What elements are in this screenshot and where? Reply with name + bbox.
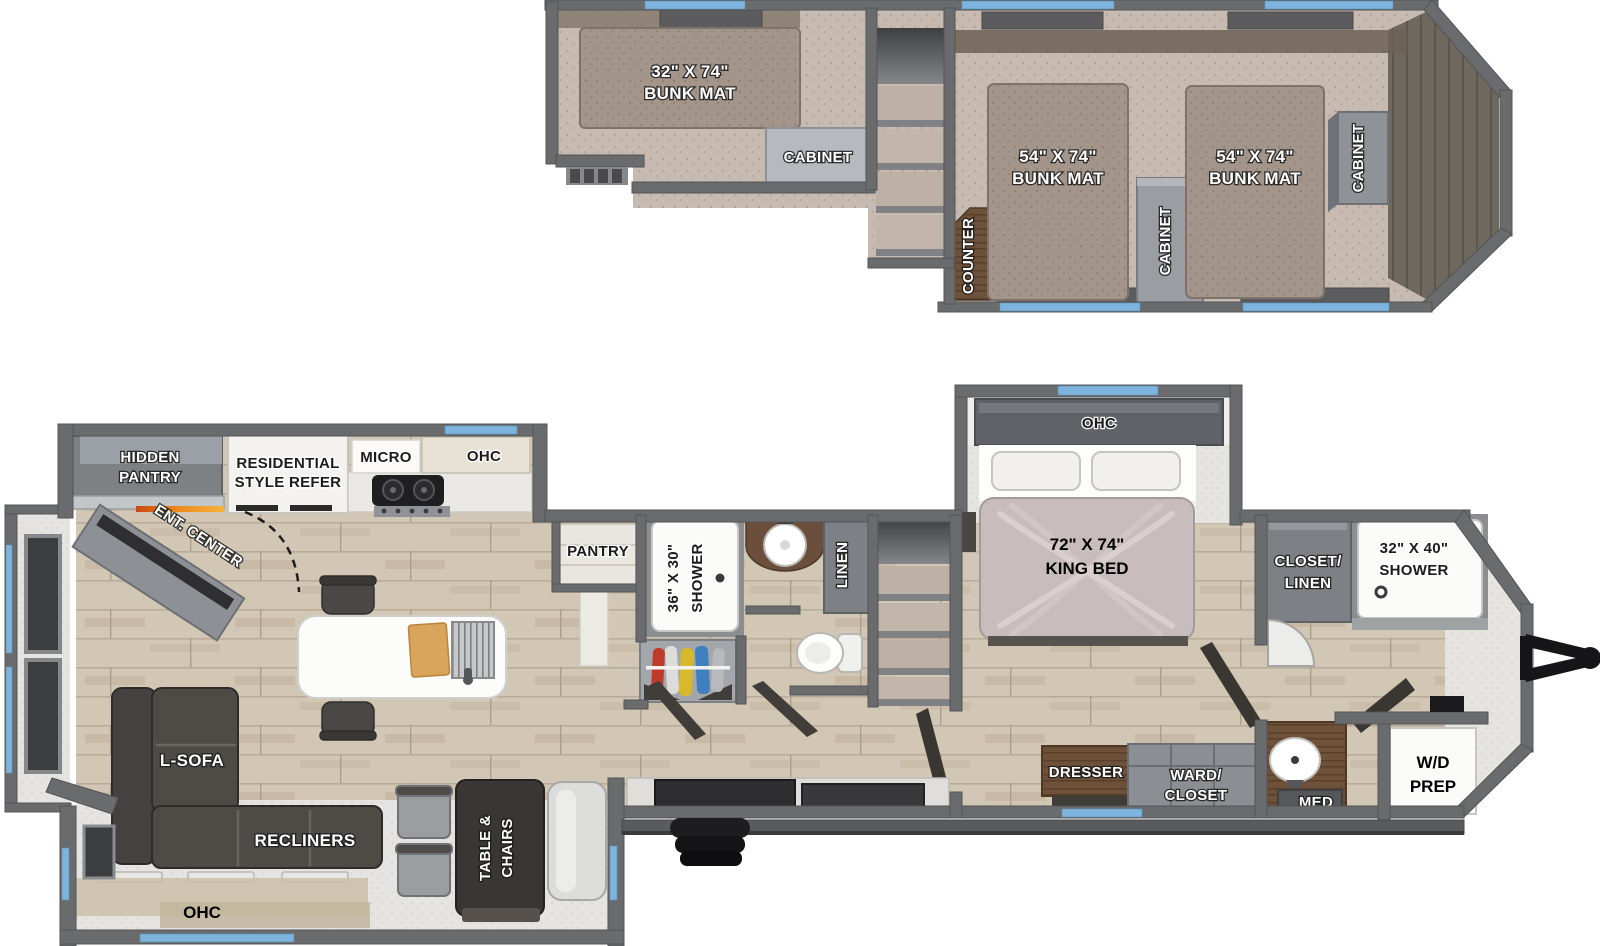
bath-vanity [746,517,824,571]
front-shower-size-label: 32" X 40" [1380,540,1449,557]
hitch-icon [1520,634,1600,682]
loft-stairs [876,28,950,256]
dresser-label: DRESSER [1049,764,1124,781]
floorplan-svg: 32" X 74" BUNK MAT CABINET COUNTER 54" X… [0,0,1600,946]
rv-floorplan-canvas: 32" X 74" BUNK MAT CABINET COUNTER 54" X… [0,0,1600,946]
bunk-small-name-label: BUNK MAT [644,84,736,103]
cooktop-icon [372,475,450,517]
refrigerator: RESIDENTIAL STYLE REFER [228,434,348,513]
micro-label: MICRO [360,449,412,466]
bunk-small-size-label: 32" X 74" [651,62,728,81]
linen-label: LINEN [834,542,851,589]
toilet-icon [797,633,862,673]
ward-closet-label-1: WARD/ [1170,767,1222,784]
entry-steps-icon [670,818,750,866]
kitchen-ohc-label: OHC [467,448,501,465]
island-sink-icon [452,622,494,678]
kitchen-ohc: OHC [422,437,530,473]
cutting-board-icon [408,623,450,678]
nightstand [962,512,976,552]
bunk-mat-32x74: 32" X 74" BUNK MAT [580,28,800,128]
bunk-left-size-label: 54" X 74" [1019,147,1096,166]
front-closet-label-2: LINEN [1285,575,1332,592]
bunk-mat-54x74-left: 54" X 74" BUNK MAT [988,84,1128,300]
table-label-1: TABLE & [477,815,494,881]
rear-slide [5,505,71,812]
front-closet-label-1: CLOSET/ [1274,553,1342,570]
pantry-label: PANTRY [567,543,629,560]
bedroom-ohc-label: OHC [1082,415,1116,432]
front-closet-linen: CLOSET/ LINEN [1265,516,1351,622]
living-ohc-label: OHC [183,903,221,922]
hidden-pantry-label-1: HIDDEN [120,449,179,466]
linen-cabinet: LINEN [824,517,870,613]
recliners-label: RECLINERS [255,831,356,850]
shower-drain-icon [716,574,725,583]
loft-entry-hatch [566,167,628,185]
bedroom-ohc: OHC [975,399,1223,445]
ward-closet-label-2: CLOSET [1165,787,1228,804]
bunk-left-name-label: BUNK MAT [1012,169,1104,188]
loft-mid-cabinet-label: CABINET [1157,207,1174,276]
loft-counter: COUNTER [952,208,992,300]
loft-rear-cabinet-label: CABINET [784,149,853,166]
table-label-2: CHAIRS [499,818,516,877]
bunk-right-size-label: 54" X 74" [1216,147,1293,166]
mid-shower: 36" X 30" SHOWER [646,515,744,637]
microwave: MICRO [352,440,420,473]
main-stairs [878,518,950,706]
bed-pillows [979,445,1196,501]
hidden-pantry-label-2: PANTRY [119,469,181,486]
hidden-pantry: HIDDEN PANTRY [70,436,222,498]
kitchen-run: HIDDEN PANTRY RESIDENTIAL STYLE REFER MI… [70,434,532,517]
l-sofa-label: L-SOFA [160,751,224,770]
loft-counter-label: COUNTER [960,218,977,294]
bunk-mat-54x74-right: 54" X 74" BUNK MAT [1186,86,1324,298]
mid-shower-size-label: 36" X 30" [665,544,682,613]
wd-prep-label-1: W/D [1416,753,1449,772]
king-bed: 72" X 74" KING BED [980,498,1194,646]
bunk-right-name-label: BUNK MAT [1209,169,1301,188]
refer-label-2: STYLE REFER [235,474,342,491]
med-vanity: MED [1266,722,1346,811]
rear-windows [26,536,60,772]
dresser: DRESSER [1042,746,1138,810]
faucet-icon [463,668,473,685]
loft-floorplan: 32" X 74" BUNK MAT CABINET COUNTER 54" X… [545,0,1512,312]
king-bed-size-label: 72" X 74" [1050,535,1125,554]
main-floorplan: OHC 72" X 74" KING BED [5,385,1600,946]
refer-label-1: RESIDENTIAL [236,455,339,472]
mid-shower-name-label: SHOWER [689,543,706,612]
landing-gear-icon [1430,696,1464,712]
loft-front-cabinet-label: CABINET [1350,124,1367,193]
king-bed-name-label: KING BED [1045,559,1128,578]
front-shower-name-label: SHOWER [1379,562,1448,579]
loft-front-cabinet: CABINET [1328,112,1388,212]
fireplace-icon [136,506,224,512]
ward-closet: WARD/ CLOSET [1128,744,1258,814]
entry-door [627,778,949,810]
living-side-window [84,826,114,878]
wd-prep-label-2: PREP [1410,777,1456,796]
loft-rear-cabinet: CABINET [766,128,870,186]
